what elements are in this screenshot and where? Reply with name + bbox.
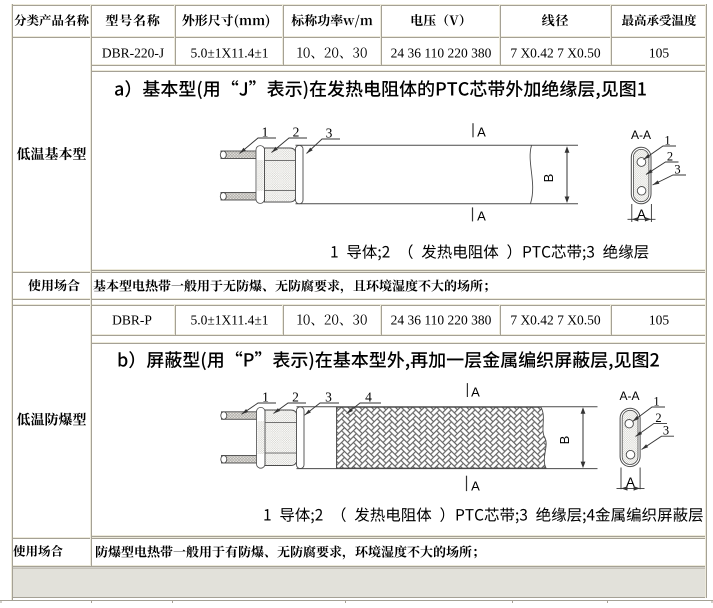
svg-text:4: 4 bbox=[365, 390, 372, 405]
svg-text:DBR-220-J: DBR-220-J bbox=[102, 46, 164, 61]
svg-text:1: 1 bbox=[664, 134, 670, 148]
svg-text:2: 2 bbox=[667, 150, 673, 164]
svg-text:3: 3 bbox=[674, 163, 680, 177]
svg-text:2: 2 bbox=[293, 125, 300, 140]
svg-text:7 X0.42 7 X0.50: 7 X0.42 7 X0.50 bbox=[510, 313, 601, 328]
svg-text:105: 105 bbox=[649, 313, 670, 328]
svg-text:1: 1 bbox=[653, 395, 659, 409]
svg-text:A: A bbox=[626, 475, 635, 490]
svg-text:A-A: A-A bbox=[619, 389, 639, 403]
svg-text:24 36 110 220 380: 24 36 110 220 380 bbox=[391, 46, 492, 61]
svg-text:2: 2 bbox=[655, 411, 661, 425]
svg-text:105: 105 bbox=[649, 46, 670, 61]
svg-text:A: A bbox=[477, 209, 486, 224]
svg-text:A-A: A-A bbox=[631, 128, 651, 142]
svg-text:A: A bbox=[477, 125, 486, 140]
svg-text:B: B bbox=[557, 436, 572, 445]
svg-text:DBR-P: DBR-P bbox=[112, 313, 152, 328]
svg-text:B: B bbox=[541, 174, 556, 183]
svg-text:3: 3 bbox=[663, 424, 669, 438]
svg-text:5.0±1X11.4±1: 5.0±1X11.4±1 bbox=[190, 46, 268, 61]
svg-text:2: 2 bbox=[292, 390, 299, 405]
svg-text:3: 3 bbox=[326, 126, 333, 141]
svg-text:5.0±1X11.4±1: 5.0±1X11.4±1 bbox=[190, 313, 268, 328]
svg-text:3: 3 bbox=[325, 390, 332, 405]
svg-text:24 36 110 220 380: 24 36 110 220 380 bbox=[391, 313, 492, 328]
svg-text:A: A bbox=[471, 479, 480, 494]
svg-text:A: A bbox=[637, 207, 646, 222]
svg-text:1: 1 bbox=[262, 125, 269, 140]
svg-text:1: 1 bbox=[262, 390, 269, 405]
svg-text:7 X0.42 7 X0.50: 7 X0.42 7 X0.50 bbox=[510, 46, 601, 61]
svg-text:A: A bbox=[471, 385, 480, 400]
